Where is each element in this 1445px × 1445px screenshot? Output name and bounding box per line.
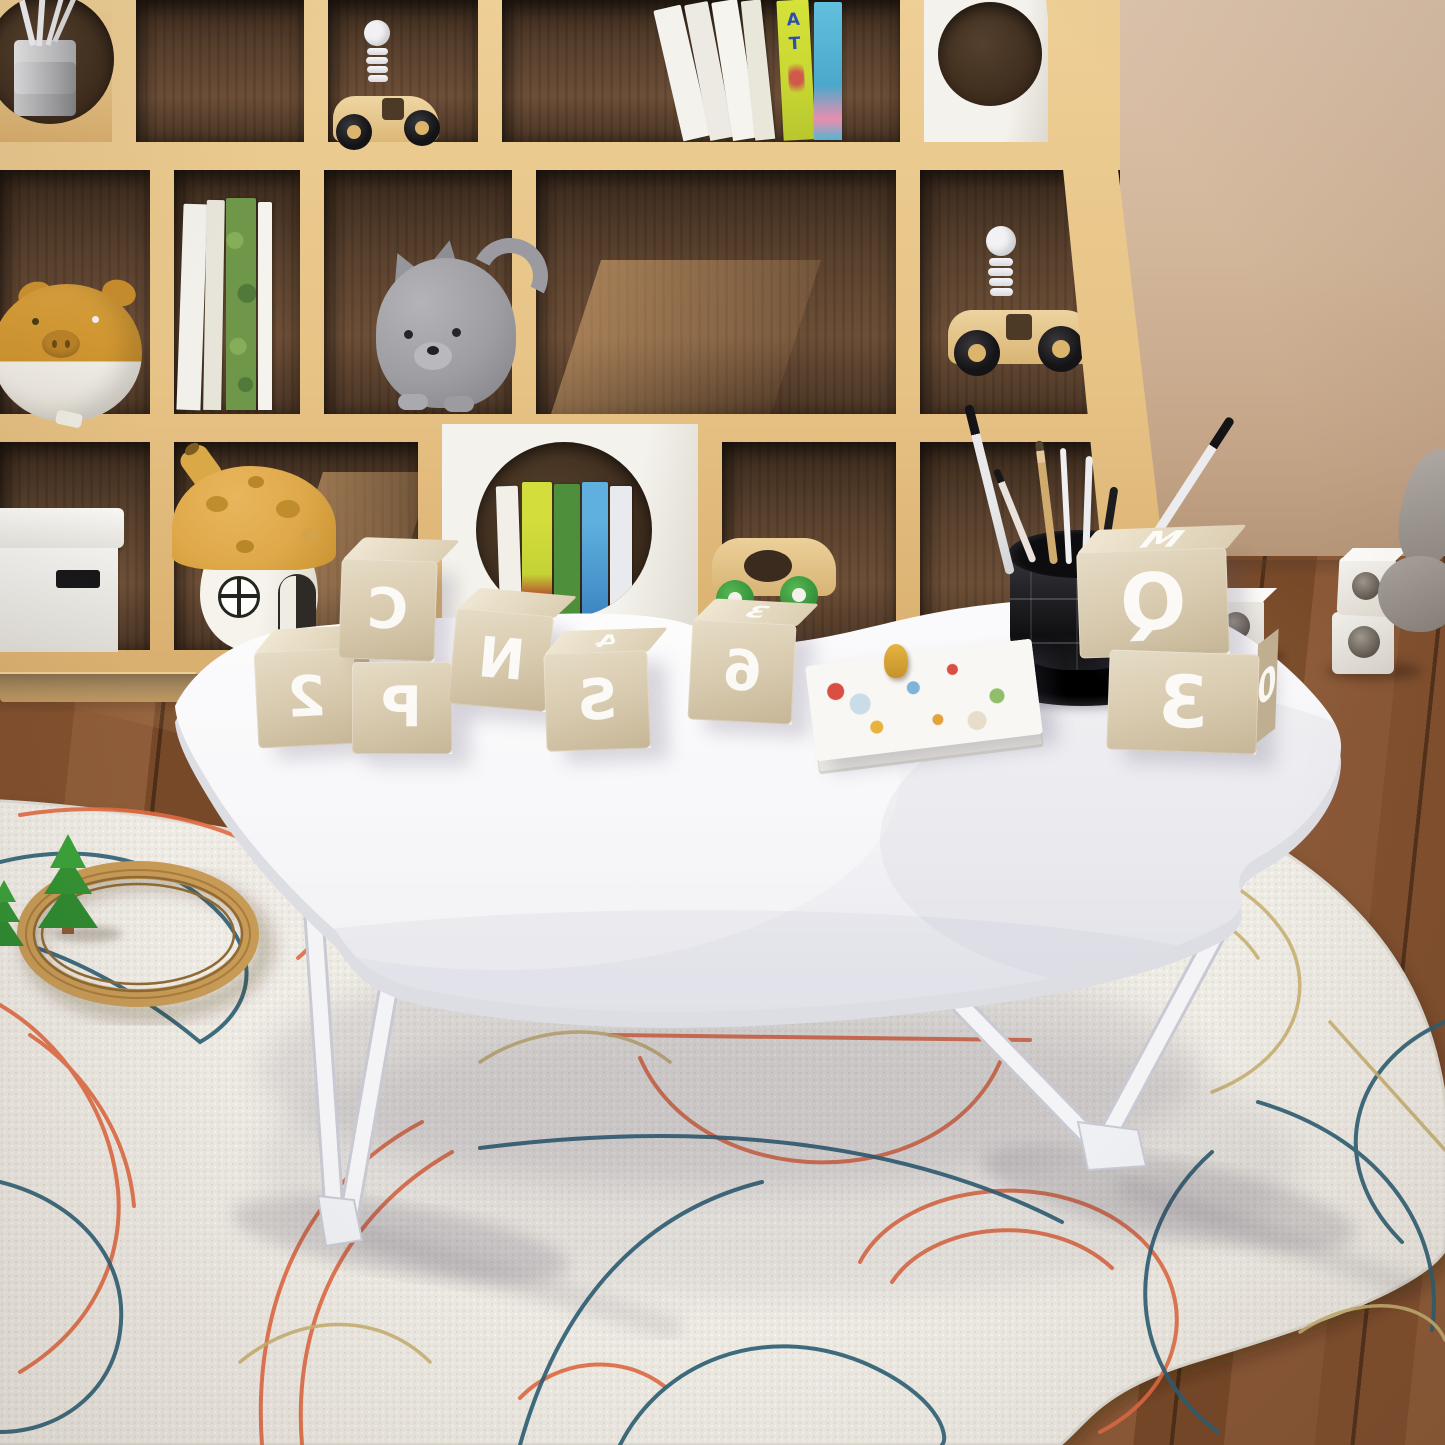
block-front-face: C [338,558,437,661]
letter-block: M Q [1076,547,1230,658]
letter-block: 3 6 [687,619,796,724]
block-front-face: P [352,662,452,754]
yellow-game-piece [884,644,908,678]
leg-foot [318,1196,362,1246]
block-front-face: Q [1076,547,1230,658]
block-front-face: 3 [1106,649,1259,754]
block-front-face: 2 [254,647,359,748]
letter-block: N [448,608,554,712]
playroom-scene: A T [0,0,1445,1445]
letter-block: 4 S [543,650,650,752]
block-front-face: 6 [687,619,796,724]
letter-block: 0 3 [1106,649,1259,754]
white-pencil-icon [1060,448,1072,564]
letter-block: P [352,662,452,754]
wood-pencil-icon [1035,440,1058,564]
letter-block: 3 2 [254,647,359,748]
block-front-face: N [448,608,554,712]
block-front-face: S [543,650,650,752]
leg-foot [1078,1122,1146,1170]
letter-block: C [338,558,437,661]
